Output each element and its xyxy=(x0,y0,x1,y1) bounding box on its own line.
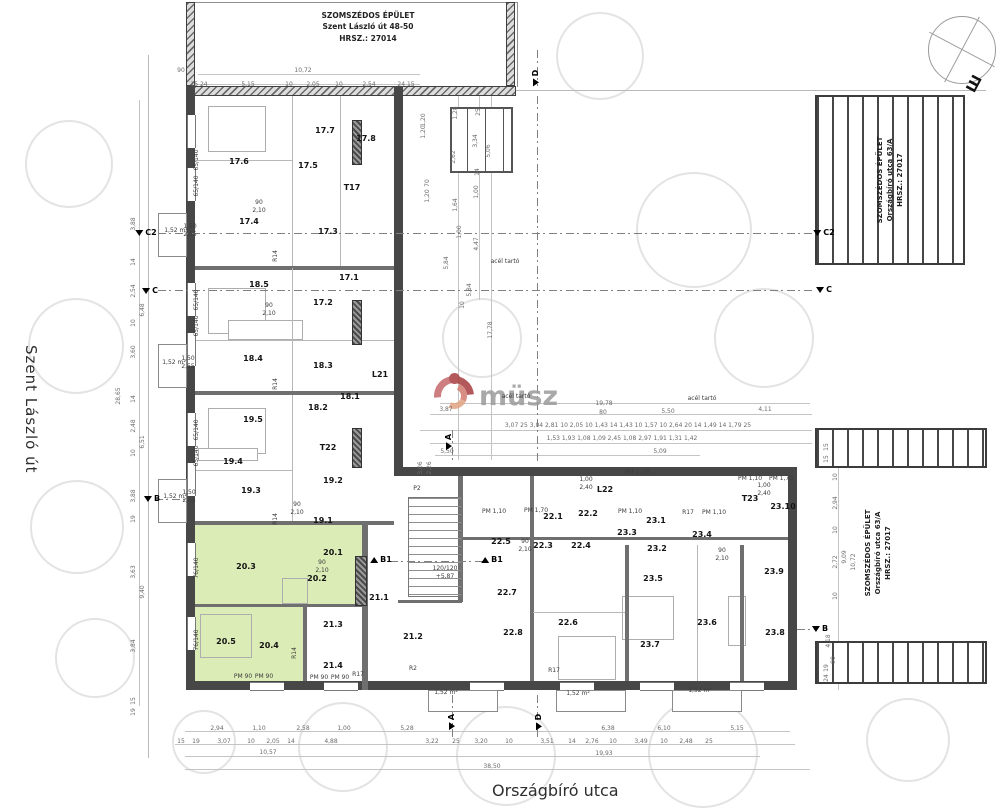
section-triangle-icon xyxy=(536,722,542,730)
section-marker: C xyxy=(816,286,832,294)
section-triangle-icon xyxy=(816,287,824,293)
section-marker: C2 xyxy=(813,229,834,237)
section-letter: B1 xyxy=(380,556,392,564)
section-letter: C xyxy=(826,286,832,294)
section-letter: D xyxy=(532,70,540,77)
floor-plan: SZOMSZÉDOS ÉPÜLET Szent László út 48-50 … xyxy=(0,0,1000,810)
section-triangle-icon xyxy=(481,557,489,563)
section-letter: B xyxy=(154,495,160,503)
section-marker: B xyxy=(812,625,828,633)
section-letter: A xyxy=(448,714,456,720)
section-marker: D xyxy=(535,714,543,731)
section-triangle-icon xyxy=(142,288,150,294)
section-markers: C2 C B C2 C B B1 B1 A A xyxy=(0,0,1000,810)
section-marker: A xyxy=(448,714,456,730)
section-letter: C2 xyxy=(145,229,156,237)
section-letter: A xyxy=(445,434,453,440)
section-marker: B1 xyxy=(481,556,503,564)
section-marker: C2 xyxy=(135,229,156,237)
section-triangle-icon xyxy=(533,78,539,86)
section-triangle-icon xyxy=(135,230,143,236)
section-marker: C xyxy=(142,287,158,295)
section-marker: D xyxy=(532,70,540,87)
section-letter: D xyxy=(535,714,543,721)
section-triangle-icon xyxy=(446,442,452,450)
section-marker: B1 xyxy=(370,556,392,564)
section-letter: C2 xyxy=(823,229,834,237)
section-triangle-icon xyxy=(813,230,821,236)
section-marker: B xyxy=(144,495,160,503)
section-triangle-icon xyxy=(370,557,378,563)
section-marker: A xyxy=(445,434,453,450)
section-letter: B1 xyxy=(491,556,503,564)
section-triangle-icon xyxy=(812,626,820,632)
section-triangle-icon xyxy=(449,722,455,730)
section-triangle-icon xyxy=(144,496,152,502)
section-letter: C xyxy=(152,287,158,295)
section-letter: B xyxy=(822,625,828,633)
